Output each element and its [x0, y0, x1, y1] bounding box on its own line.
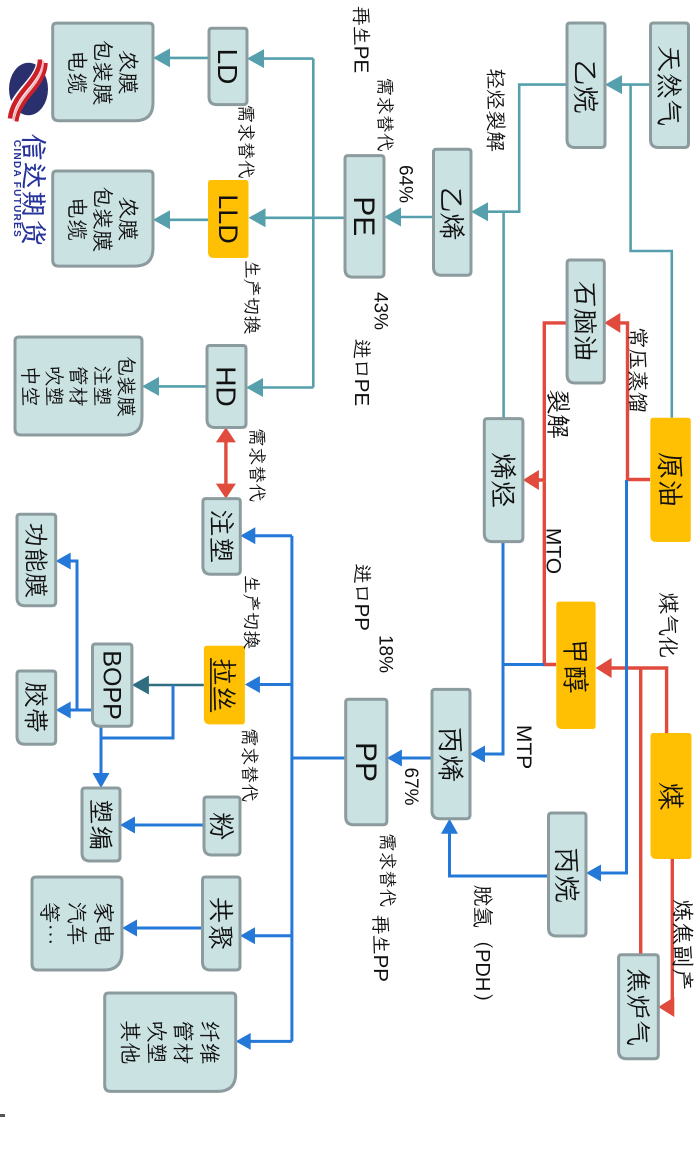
svg-text:PP: PP — [349, 742, 382, 782]
svg-text:MTP: MTP — [512, 725, 535, 769]
svg-text:PE: PE — [347, 196, 380, 236]
svg-text:PE: PE — [349, 46, 372, 73]
svg-text:HD: HD — [211, 366, 242, 406]
svg-text:18%: 18% — [374, 635, 395, 673]
svg-text:43%: 43% — [369, 292, 390, 330]
svg-text:LD: LD — [212, 49, 243, 85]
svg-text:PP: PP — [369, 955, 392, 982]
svg-text:PDH: PDH — [471, 949, 493, 991]
svg-text:PP: PP — [350, 604, 373, 631]
svg-text:PE: PE — [350, 379, 373, 406]
svg-text:CINDA FUTURES: CINDA FUTURES — [11, 140, 22, 238]
svg-text:MTO: MTO — [542, 528, 565, 574]
svg-text:BOPP: BOPP — [97, 650, 125, 719]
svg-text:LLD: LLD — [213, 194, 243, 244]
svg-text:67%: 67% — [400, 767, 421, 805]
svg-text:64%: 64% — [394, 165, 415, 203]
